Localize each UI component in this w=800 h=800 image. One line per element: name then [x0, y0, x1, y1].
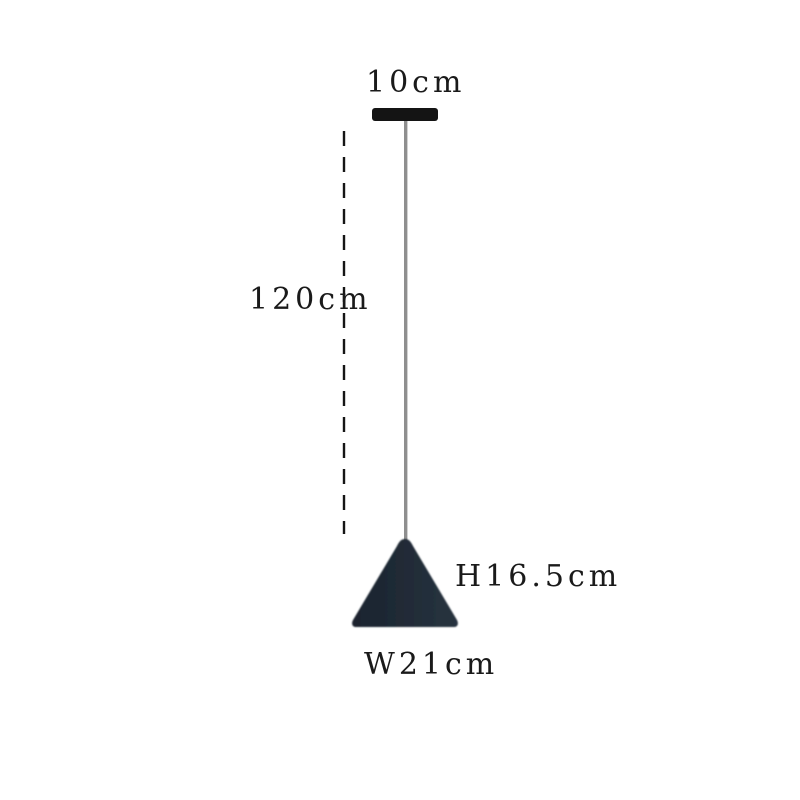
cone-lamp-shade — [352, 539, 458, 627]
cord-length-label: 120cm — [249, 285, 372, 315]
shade-width-label: W21cm — [364, 650, 498, 680]
mount-width-label: 10cm — [366, 68, 465, 98]
shade-height-label: H16.5cm — [455, 562, 621, 592]
ceiling-mount-bar — [372, 108, 438, 121]
lamp-dimension-diagram: 10cm 120cm H16.5cm W21cm — [0, 0, 800, 800]
lamp-cord — [404, 120, 407, 544]
